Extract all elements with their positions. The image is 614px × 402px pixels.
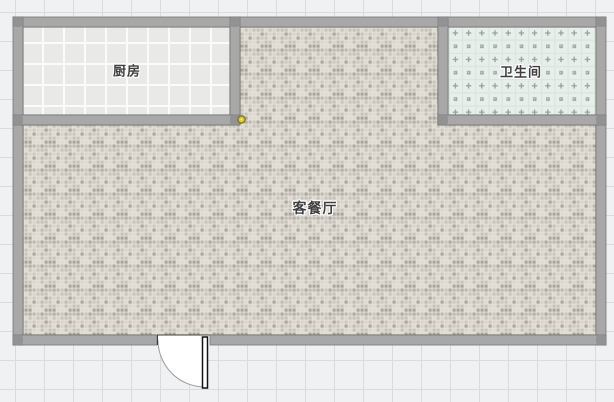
wall-bottom-left-segment[interactable] xyxy=(13,335,157,345)
door-leaf[interactable] xyxy=(203,337,208,388)
door-swing-area xyxy=(158,340,205,387)
wall-kitchen-bottom[interactable] xyxy=(13,115,240,125)
vertex-handle[interactable] xyxy=(238,116,245,123)
wall-bathroom-left[interactable] xyxy=(438,17,448,125)
room-label-living-dining: 客餐厅 xyxy=(293,198,338,218)
door[interactable] xyxy=(158,335,210,388)
wall-bathroom-bottom[interactable] xyxy=(438,115,606,125)
wall-right[interactable] xyxy=(596,17,606,345)
room-label-kitchen: 厨房 xyxy=(113,61,141,80)
room-label-bathroom: 卫生间 xyxy=(500,62,542,81)
wall-top[interactable] xyxy=(13,17,606,27)
wall-left[interactable] xyxy=(13,17,23,345)
floorplan-canvas[interactable]: 厨房 卫生间 客餐厅 xyxy=(0,0,614,402)
wall-bottom-right-segment[interactable] xyxy=(210,335,606,345)
wall-kitchen-right[interactable] xyxy=(230,17,240,125)
